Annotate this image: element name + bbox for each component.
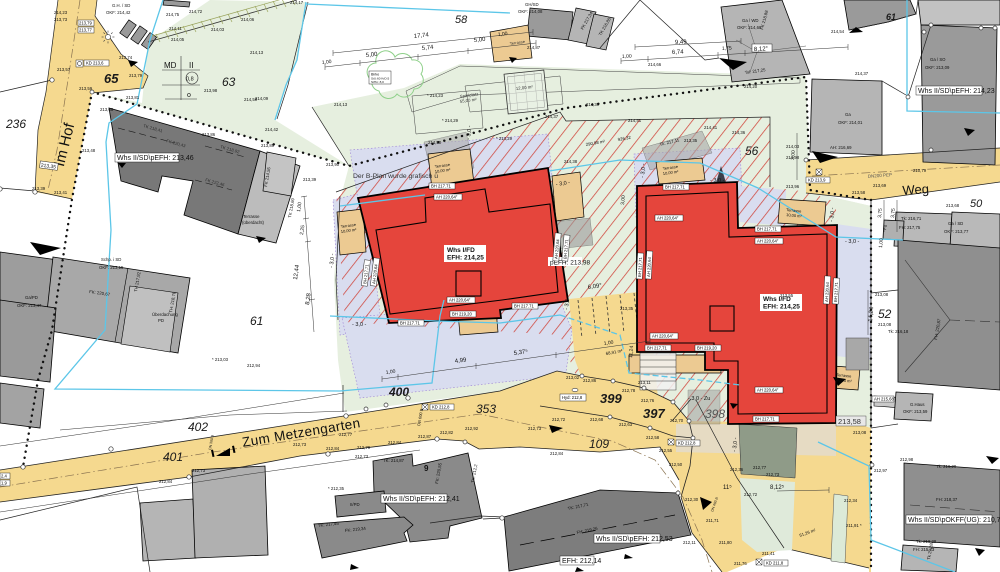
svg-text:Weg: Weg [902,181,929,198]
svg-text:399: 399 [600,391,622,406]
svg-text:8,12°: 8,12° [754,46,769,53]
svg-text:11⁵: 11⁵ [723,484,732,491]
svg-text:213,08: 213,08 [875,292,889,297]
svg-text:213,68: 213,68 [946,203,960,208]
svg-text:212,73: 212,73 [355,454,369,459]
svg-text:KD 212,8: KD 212,8 [432,405,450,410]
svg-text:214,06: 214,06 [241,17,255,22]
svg-text:8,12⁵: 8,12⁵ [770,484,785,491]
svg-text:212,73: 212,73 [192,468,206,473]
svg-text:213,11: 213,11 [638,380,651,385]
svg-text:BH 217,71: BH 217,71 [757,227,777,232]
svg-text:StHö: 8,0: StHö: 8,0 [371,80,384,84]
svg-text:1,00: 1,00 [622,53,632,60]
svg-text:EFH: 214,25: EFH: 214,25 [763,304,800,311]
svg-text:214,13: 214,13 [334,102,348,107]
svg-text:GH/SD: GH/SD [525,2,539,7]
svg-text:BH 217.71: BH 217.71 [400,321,420,326]
svg-text:214,87: 214,87 [527,45,541,50]
svg-text:Überdachung: Überdachung [152,312,178,317]
svg-text:213,08: 213,08 [878,322,892,327]
svg-text:212,73: 212,73 [528,426,542,431]
svg-text:211,91 *: 211,91 * [846,523,862,528]
svg-text:214,66: 214,66 [648,62,662,67]
svg-text:210,79: 210,79 [913,168,927,173]
svg-text:236: 236 [5,117,26,131]
svg-text:212,84: 212,84 [550,451,564,456]
svg-text:KD 212,8: KD 212,8 [678,441,696,446]
svg-text:AH: 216,69: AH: 216,69 [830,145,852,150]
svg-text:214,37: 214,37 [545,114,559,119]
svg-text:- 3,0 -: - 3,0 - [845,239,860,245]
svg-text:G.Haus: G.Haus [910,402,925,407]
svg-text:6,74: 6,74 [672,49,685,56]
svg-text:213,35: 213,35 [684,138,698,143]
svg-text:212,84: 212,84 [388,440,402,445]
svg-text:5,74: 5,74 [422,45,435,52]
svg-text:OKF: 214,01: OKF: 214,01 [838,120,863,125]
svg-text:OKF: 213,59: OKF: 213,59 [903,409,928,414]
svg-text:o: o [187,92,191,99]
svg-text:212,72: 212,72 [552,417,566,422]
svg-text:BH 219,20: BH 219,20 [697,346,717,351]
svg-text:212,86: 212,86 [583,378,597,383]
svg-text:212,11: 212,11 [683,540,696,545]
svg-text:AH 220,64°: AH 220,64° [449,298,471,303]
svg-text:AH 220,64°: AH 220,64° [436,195,458,200]
svg-text:61: 61 [250,314,263,328]
svg-text:G.H. / SD: G.H. / SD [112,3,130,8]
svg-text:212,84: 212,84 [326,446,340,451]
svg-text:214,37: 214,37 [855,71,869,76]
svg-text:Whs II/SD\pEFH: 212,53: Whs II/SD\pEFH: 212,53 [596,536,673,543]
svg-text:Whs II/SD\pEFH: 214,23: Whs II/SD\pEFH: 214,23 [918,88,995,95]
svg-text:213,73: 213,73 [54,17,68,22]
svg-text:212,77: 212,77 [339,432,353,437]
svg-text:TK: 214,87: TK: 214,87 [383,458,405,463]
svg-text:213,57: 213,57 [57,67,71,72]
svg-text:Der B-Plan wurde grafisch ü: Der B-Plan wurde grafisch ü [353,173,438,180]
svg-text:214,75: 214,75 [166,12,180,17]
svg-text:0,8: 0,8 [186,77,194,83]
svg-text:211,71: 211,71 [706,518,719,523]
svg-text:- 3,0 -: - 3,0 - [352,322,367,328]
svg-text:214,50: 214,50 [428,140,442,145]
svg-text:212,87: 212,87 [418,434,432,439]
svg-text:Whs I/FD: Whs I/FD [447,247,475,254]
svg-text:FH: 217,75: FH: 217,75 [899,225,921,230]
svg-text:213,98: 213,98 [204,88,218,93]
svg-text:Ga / SO: Ga / SO [930,57,946,62]
svg-text:109: 109 [589,437,609,451]
svg-text:213,59: 213,59 [79,86,93,91]
svg-text:58: 58 [455,14,468,26]
svg-text:213,77: 213,77 [79,28,92,33]
svg-text:AH 220,64°: AH 220,64° [757,388,779,393]
svg-text:BH 217,71: BH 217,71 [755,417,775,422]
svg-text:FH: 218,37: FH: 218,37 [936,497,958,502]
svg-text:Hyd: 212,8: Hyd: 212,8 [562,395,583,400]
svg-text:212,76: 212,76 [641,398,655,403]
svg-text:5,00: 5,00 [474,37,487,44]
svg-text:AH 220,64: AH 220,64 [824,281,830,302]
svg-text:212,68: 212,68 [590,417,604,422]
svg-text:* 212,35: * 212,35 [328,486,345,491]
svg-text:* 214,29: * 214,29 [496,136,513,141]
svg-text:212,63: 212,63 [619,422,633,427]
svg-text:9: 9 [424,464,429,473]
svg-text:212,77: 212,77 [753,465,767,470]
svg-text:63: 63 [222,75,236,89]
svg-text:AH 220,64: AH 220,64 [646,256,652,277]
svg-text:Ga: Ga [845,112,851,117]
svg-text:61: 61 [886,12,896,22]
svg-text:Whs II/SD\pEFH: 212,41: Whs II/SD\pEFH: 212,41 [383,496,460,503]
svg-text:214,20: 214,20 [744,84,758,89]
svg-text:212,34: 212,34 [844,498,858,503]
svg-text:1,00: 1,00 [498,31,509,38]
svg-text:213,08: 213,08 [853,430,867,435]
svg-text:213,58: 213,58 [838,417,861,426]
svg-text:214,03: 214,03 [211,27,225,32]
svg-text:214,38: 214,38 [564,159,578,164]
svg-text:211,41: 211,41 [762,551,775,556]
svg-text:213,90: 213,90 [326,162,340,167]
svg-text:212,84: 212,84 [159,479,173,484]
svg-text:52: 52 [878,307,892,321]
svg-text:3,75: 3,75 [877,208,884,218]
svg-text:50: 50 [970,198,983,210]
svg-text:- 3,0 -: - 3,0 - [564,295,571,310]
svg-text:11,24: 11,24 [628,345,635,358]
svg-text:BH 217.71: BH 217.71 [514,304,534,309]
svg-text:213,79: 213,79 [79,21,92,26]
svg-text:212,50: 212,50 [669,462,683,467]
svg-text:1,00: 1,00 [322,59,333,66]
svg-text:* 214,23: * 214,23 [427,93,444,98]
svg-text:212,55: 212,55 [659,448,673,453]
svg-text:- 3,0 -: - 3,0 - [466,125,473,140]
svg-text:3,00: 3,00 [790,150,797,160]
svg-text:214,54: 214,54 [831,29,845,34]
svg-text:214,59: 214,59 [244,97,258,102]
svg-text:214,41: 214,41 [704,125,718,130]
svg-text:OKF: 213,47: OKF: 213,47 [17,303,42,308]
svg-text:9,49: 9,49 [675,39,688,46]
svg-text:212,30: 212,30 [685,497,699,502]
svg-text:212,78: 212,78 [622,388,636,393]
svg-text:Whs II/SD\pOKFF(UG): 210,7: Whs II/SD\pOKFF(UG): 210,7 [908,517,1000,524]
svg-text:400: 400 [388,385,409,399]
svg-text:213,74: 213,74 [119,55,133,60]
svg-text:Schp. i SD: Schp. i SD [101,257,121,262]
svg-text:214,03: 214,03 [786,144,800,149]
svg-text:214,42: 214,42 [265,127,279,132]
svg-text:II: II [189,61,193,70]
svg-text:- 3,0 -: - 3,0 - [710,178,725,184]
svg-text:Ga / SD: Ga / SD [948,221,963,226]
svg-text:398: 398 [705,407,725,421]
svg-text:EFH: 212,14: EFH: 212,14 [562,558,601,565]
svg-text:Ga/PD: Ga/PD [25,295,38,300]
svg-text:AH 220,64°: AH 220,64° [757,239,779,244]
svg-text:56: 56 [745,144,759,158]
svg-text:1,75: 1,75 [722,45,732,52]
svg-text:OKF: 214,42: OKF: 214,42 [106,10,131,15]
svg-text:212,94: 212,94 [247,363,261,368]
svg-text:BH 219,20: BH 219,20 [452,312,472,317]
svg-text:Tk: 216,71: Tk: 216,71 [901,216,922,221]
svg-text:BH 217,71: BH 217,71 [833,281,839,302]
svg-text:PD: PD [158,318,164,323]
svg-text:213,89: 213,89 [261,143,275,148]
svg-text:3,00: 3,00 [620,195,627,205]
svg-text:214,41: 214,41 [628,118,642,123]
svg-text:213,35: 213,35 [620,306,634,311]
svg-text:214,72: 214,72 [189,9,203,14]
svg-text:- 3,0 -: - 3,0 - [829,207,836,222]
svg-text:212,98: 212,98 [900,457,914,462]
svg-text:BH 217,71: BH 217,71 [637,256,643,277]
svg-text:213,81: 213,81 [126,95,140,100]
svg-text:212,72: 212,72 [744,492,758,497]
svg-text:BH 217,71: BH 217,71 [665,185,685,190]
svg-text:212,79: 212,79 [357,445,371,450]
svg-text:211,80: 211,80 [719,540,732,545]
svg-text:214,30: 214,30 [586,102,600,107]
svg-text:Tk: 218,29: Tk: 218,29 [916,539,937,544]
svg-text:397: 397 [643,406,665,421]
svg-text:MD: MD [164,61,177,70]
svg-text:1,00: 1,00 [878,238,885,248]
svg-text:BH 217,71: BH 217,71 [647,346,667,351]
svg-text:KD 211,8: KD 211,8 [766,561,784,566]
svg-text:213,96: 213,96 [786,184,800,189]
svg-text:213,69: 213,69 [873,183,887,188]
svg-text:212,73: 212,73 [293,442,307,447]
svg-text:213,79: 213,79 [129,73,143,78]
svg-text:212,97: 212,97 [874,468,888,473]
svg-text:Whs II/SD\pEFH: 213,46: Whs II/SD\pEFH: 213,46 [117,155,194,162]
svg-text:BH 217.71: BH 217.71 [431,184,451,189]
svg-text:214,36: 214,36 [732,130,746,135]
svg-text:(überdacht): (überdacht) [242,220,265,225]
svg-text:OKF: 213,09: OKF: 213,09 [925,65,950,70]
svg-text:213,55: 213,55 [780,293,794,298]
svg-text:213,68: 213,68 [100,107,114,112]
svg-text:212,82: 212,82 [440,430,454,435]
svg-text:212,58: 212,58 [646,435,660,440]
svg-text:Terrasse: Terrasse [243,214,260,219]
svg-text:213,58: 213,58 [852,190,866,195]
svg-text:* 213,03: * 213,03 [212,357,229,362]
svg-text:AH 220,64°: AH 220,64° [657,216,679,221]
svg-text:Ga / WD: Ga / WD [742,18,758,23]
svg-text:212,73: 212,73 [766,472,780,477]
svg-text:2,4: 2,4 [1,474,7,479]
svg-text:353: 353 [476,402,496,416]
svg-text:214,13: 214,13 [250,50,264,55]
svg-text:214,17: 214,17 [290,0,304,5]
svg-text:401: 401 [163,450,183,464]
svg-text:Tk: 216,18: Tk: 216,18 [888,329,909,334]
svg-text:AH 215,68: AH 215,68 [874,397,894,402]
svg-text:3,75: 3,75 [890,208,897,218]
svg-text:OKF: 214,08: OKF: 214,08 [518,9,543,14]
svg-text:214,11: 214,11 [169,26,182,31]
svg-text:213,48: 213,48 [82,148,96,153]
svg-text:II/PD: II/PD [350,502,360,507]
svg-text:213,86: 213,86 [202,132,216,137]
svg-text:OKF: 213,77: OKF: 213,77 [944,229,969,234]
svg-text:- 3,0 - Zu: - 3,0 - Zu [688,396,710,402]
svg-text:213,02: 213,02 [566,375,580,380]
svg-text:214,05: 214,05 [171,37,185,42]
svg-text:EFH: 214,25: EFH: 214,25 [447,255,484,262]
svg-text:212,36: 212,36 [730,467,744,472]
svg-text:AH 220,64°: AH 220,64° [652,334,674,339]
svg-text:213,39: 213,39 [32,186,46,191]
svg-text:- 3,0 -: - 3,0 - [640,163,647,178]
svg-text:213,39: 213,39 [303,177,317,182]
svg-text:402: 402 [188,420,208,434]
svg-text:211,76: 211,76 [734,561,747,566]
svg-text:213,41: 213,41 [54,190,68,195]
svg-text:5,00: 5,00 [366,52,379,59]
svg-text:Tk: 216,29: Tk: 216,29 [936,464,957,469]
svg-text:214,23: 214,23 [54,10,68,15]
svg-text:OKF: 213,15: OKF: 213,15 [99,265,124,270]
svg-text:65: 65 [104,71,119,86]
svg-text:KD 213,9: KD 213,9 [808,178,826,183]
svg-text:1,9: 1,9 [1,481,7,486]
svg-text:- 3,0 -: - 3,0 - [329,253,336,268]
svg-text:- 3,0 -: - 3,0 - [732,437,739,452]
svg-text:* 214,29: * 214,29 [442,118,459,123]
svg-text:KD 213,6: KD 213,6 [86,61,104,66]
svg-text:212,70: 212,70 [670,418,684,423]
svg-text:212,92: 212,92 [465,426,479,431]
